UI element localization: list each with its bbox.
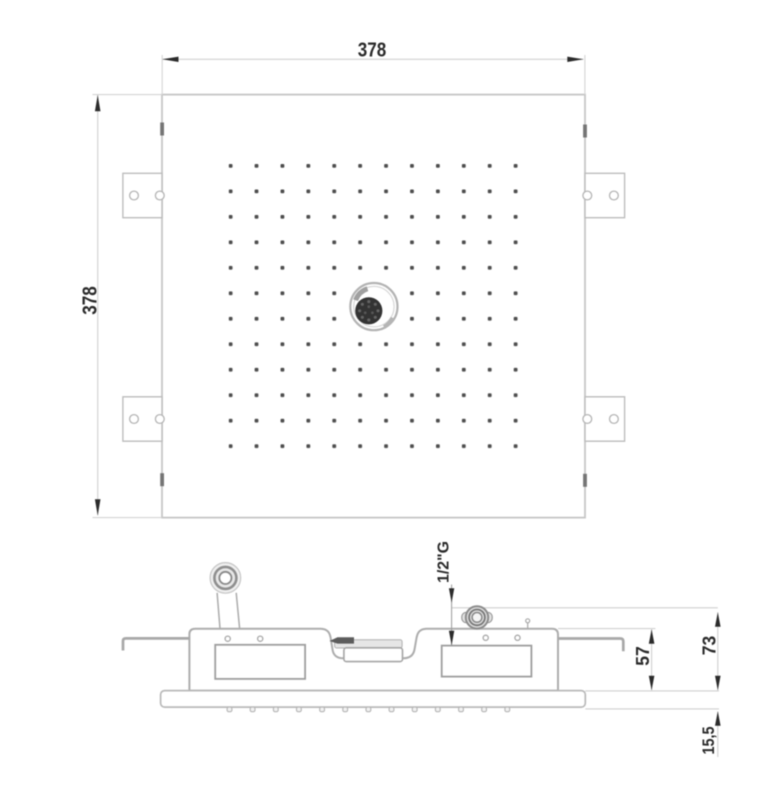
svg-text:378: 378: [358, 39, 387, 61]
svg-text:378: 378: [80, 286, 102, 315]
svg-text:1/2"G: 1/2"G: [436, 541, 453, 583]
svg-text:15,5: 15,5: [699, 727, 718, 755]
svg-text:73: 73: [700, 636, 720, 656]
svg-text:57: 57: [633, 646, 653, 666]
